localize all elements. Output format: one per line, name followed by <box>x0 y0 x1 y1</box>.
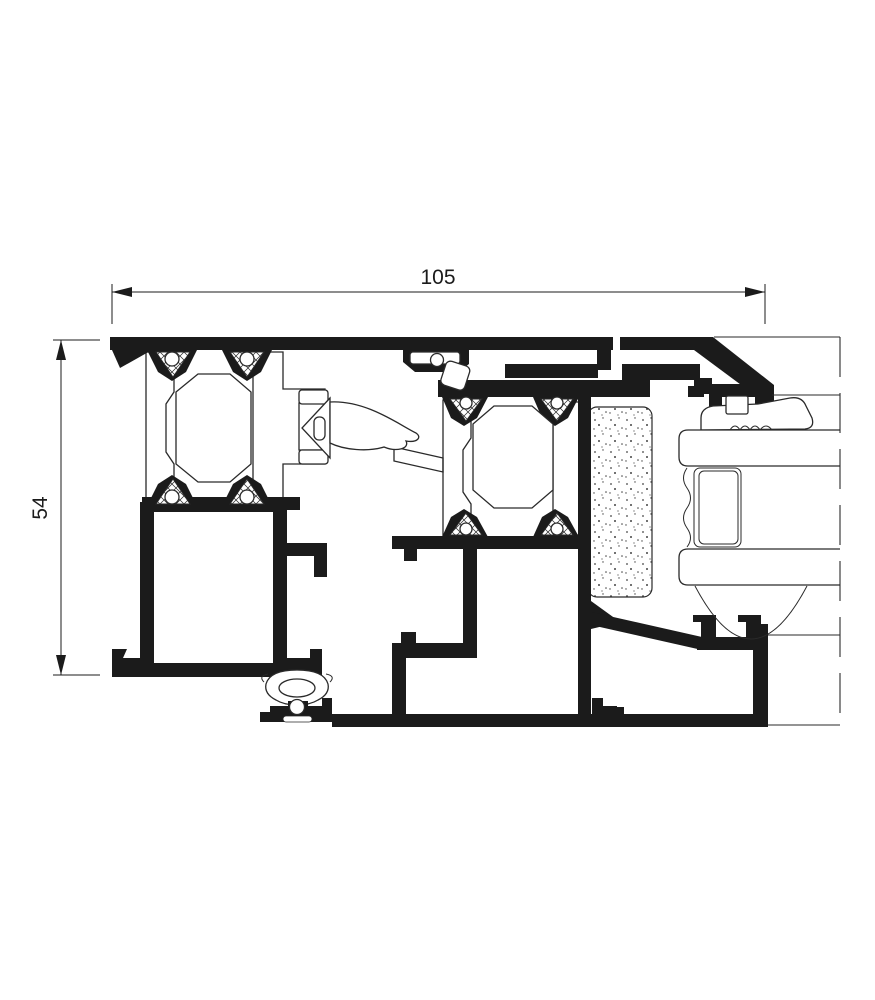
height-dimension-label: 54 <box>29 496 52 520</box>
bottom-bulb-gasket <box>260 670 332 722</box>
drawing-canvas: 105 54 <box>0 0 875 1000</box>
background <box>0 0 875 1000</box>
frame-chamber-cavity <box>154 512 273 663</box>
width-dimension-label: 105 <box>420 266 455 289</box>
foam-filler-block <box>588 407 652 597</box>
profile-section-drawing: 105 54 <box>0 0 875 1000</box>
